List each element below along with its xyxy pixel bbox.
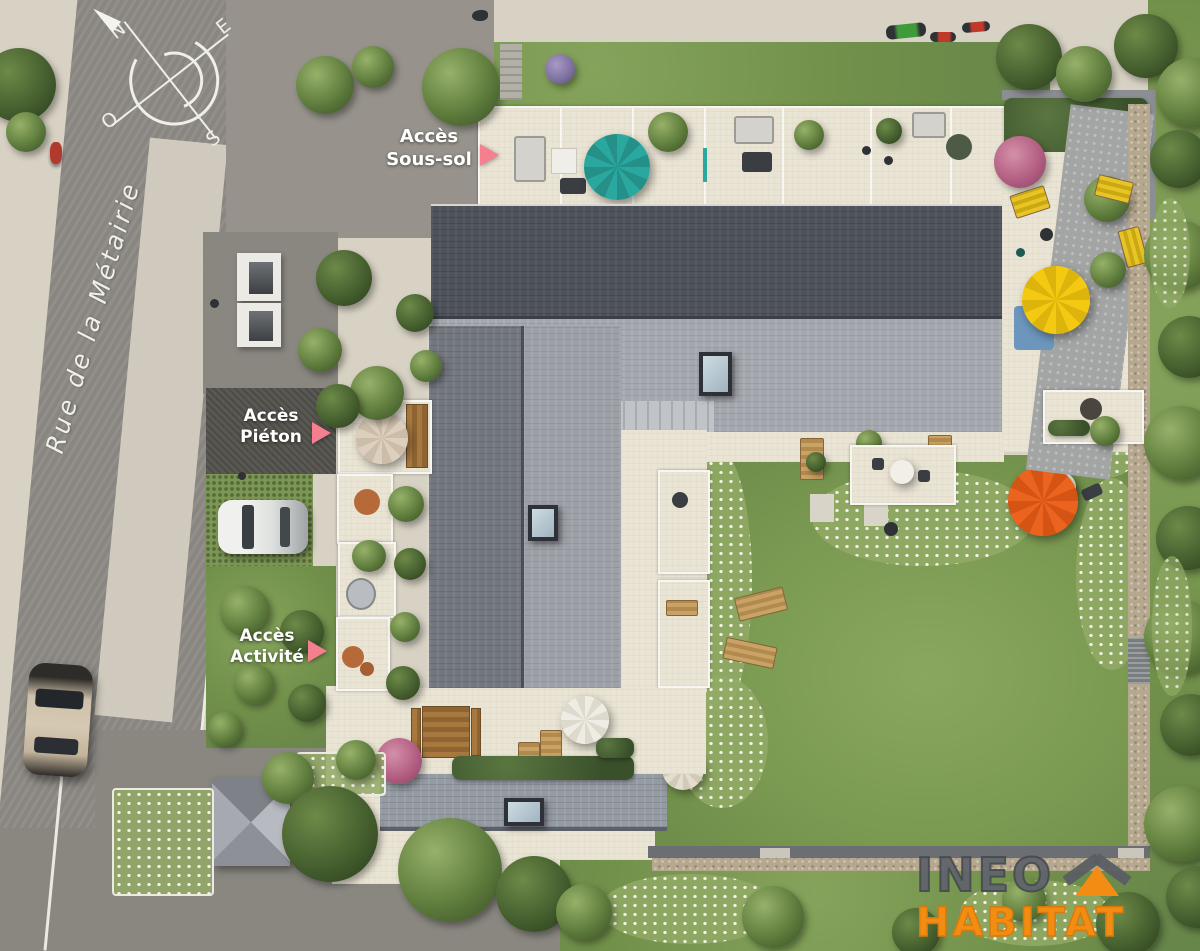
flower-planter [112, 788, 214, 896]
logo-ineo-text: INEO [916, 848, 1054, 902]
tree [234, 664, 274, 704]
hedge [452, 756, 634, 780]
terrace-planter [551, 148, 577, 174]
car-rear-window [34, 736, 79, 755]
person [862, 146, 871, 155]
balcony-table [354, 489, 380, 515]
concrete-pad [810, 494, 834, 522]
cyclist [50, 142, 62, 164]
tree [1150, 130, 1200, 188]
tree [352, 540, 386, 572]
garage-door-opening [249, 262, 273, 294]
tree [422, 48, 500, 126]
wing-ridge [521, 326, 524, 694]
terrace-sofa [912, 112, 946, 138]
courtyard-frame [658, 580, 710, 688]
beige-umbrella [356, 412, 408, 464]
tree [1090, 416, 1120, 446]
access-pieton-label: Accès Piéton [234, 406, 308, 449]
person [238, 472, 246, 480]
tree [394, 548, 426, 580]
chair [918, 470, 930, 482]
table [672, 492, 688, 508]
access-activite-arrow-icon [308, 640, 327, 662]
garage-door [237, 303, 281, 347]
skylight-glass [532, 509, 554, 537]
orange-umbrella [1008, 466, 1078, 536]
terrace-table-set [946, 134, 972, 160]
tree [410, 350, 442, 382]
tree [1056, 46, 1112, 102]
garage-door-opening [249, 311, 273, 341]
tree [648, 112, 688, 152]
tree [876, 118, 902, 144]
cyclist [962, 21, 991, 33]
patio-table [890, 460, 914, 484]
skylight [699, 352, 732, 396]
person [210, 299, 219, 308]
balcony-chair [360, 662, 374, 676]
wing-west-slope [427, 326, 525, 694]
access-label-line: Activité [226, 647, 308, 668]
access-label-line: Accès [226, 626, 308, 647]
roof-north-slope [431, 204, 1005, 320]
site-plan: N E S O Rue de la Métairie Accès Sous-so… [0, 0, 1200, 951]
courtyard-frame [658, 470, 710, 574]
tree [288, 684, 326, 722]
dining-table [422, 706, 470, 758]
skylight-glass [508, 802, 540, 822]
tree [208, 712, 242, 746]
tree [386, 666, 420, 700]
car-body [218, 500, 308, 554]
cyclist [930, 32, 956, 42]
tree [398, 818, 502, 922]
tree [296, 56, 354, 114]
roof-ridge [431, 316, 1005, 319]
terrace-mat [742, 152, 772, 172]
balcony-deck [406, 404, 428, 468]
brand-logo: INEO HABITAT [916, 848, 1180, 946]
car-windshield [242, 505, 254, 549]
access-pieton-arrow-icon [312, 422, 331, 444]
flower-bed [1152, 556, 1192, 696]
car-windshield [35, 688, 84, 709]
access-sous-sol-arrow-icon [480, 144, 499, 166]
terrace-divider [870, 108, 872, 208]
person [884, 156, 893, 165]
skylight [528, 505, 558, 541]
flowering-bush [545, 54, 575, 84]
tree [556, 884, 612, 940]
egg-chair [346, 578, 376, 610]
logo-roof-icon [1064, 848, 1130, 898]
skylight [504, 798, 544, 826]
flower-bed [1150, 198, 1190, 308]
logo-habitat-text: HABITAT [916, 900, 1180, 946]
tree [6, 112, 46, 152]
garage-door [237, 253, 281, 301]
skylight-glass [703, 356, 728, 392]
terrace-sofa [734, 116, 774, 144]
terrace-mat [560, 178, 586, 194]
hedge [596, 738, 634, 758]
tree [806, 452, 826, 472]
access-label-line: Accès [234, 406, 308, 427]
access-activite-label: Accès Activité [226, 626, 308, 669]
car-body [22, 662, 94, 778]
gravel-path-east [1128, 104, 1150, 856]
terrace-divider [782, 108, 784, 208]
cyclist [885, 22, 926, 40]
stone-steps [500, 44, 522, 100]
access-label-line: Piéton [234, 427, 308, 448]
tree [352, 46, 394, 88]
tree [1090, 252, 1126, 288]
firepit [1040, 228, 1053, 241]
tree [794, 120, 824, 150]
towel [703, 148, 707, 182]
tree [996, 24, 1062, 90]
tree [388, 486, 424, 522]
yellow-umbrella [1022, 266, 1090, 334]
access-sous-sol-label: Accès Sous-sol [386, 126, 472, 171]
tree [316, 250, 372, 306]
car-rear-window [280, 507, 290, 547]
tree [390, 612, 420, 642]
access-label-line: Accès [386, 126, 472, 149]
access-label-line: Sous-sol [386, 149, 472, 172]
person [1016, 248, 1025, 257]
terrace-sofa [514, 136, 546, 182]
tree [336, 740, 376, 780]
chair [872, 458, 884, 470]
white-umbrella [561, 696, 609, 744]
flowering-tree [994, 136, 1046, 188]
white-car [218, 500, 308, 554]
tree [742, 886, 804, 948]
hedge [1048, 420, 1090, 436]
bird [472, 10, 488, 21]
teal-umbrella [584, 134, 650, 200]
courtyard-lounger [666, 600, 698, 616]
garden-bin [884, 522, 898, 536]
beige-car [22, 662, 94, 778]
tree [396, 294, 434, 332]
tree [282, 786, 378, 882]
tree [298, 328, 342, 372]
bench [471, 708, 481, 756]
